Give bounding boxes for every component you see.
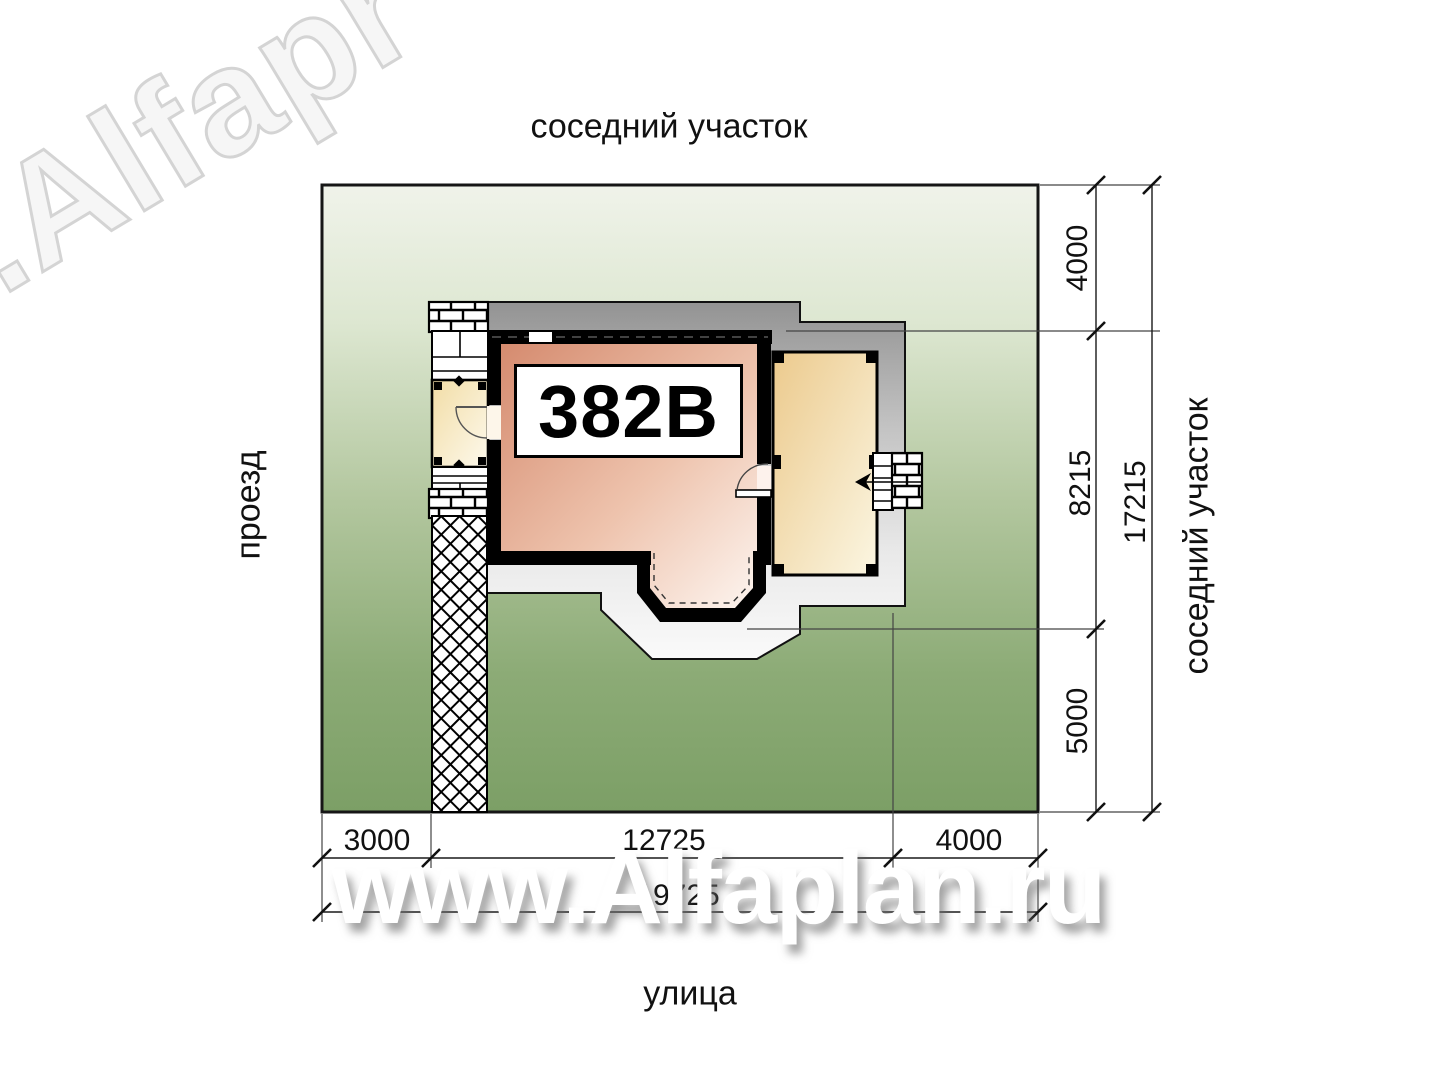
- neighbor-plot-label-right: соседний участок: [1178, 397, 1217, 674]
- porch-door-opening: [487, 406, 501, 439]
- terrace-column: [774, 564, 784, 574]
- dim-value-4000-right: 4000: [1061, 225, 1095, 292]
- wall-bottom-left: [487, 551, 651, 565]
- terrace-edge-mark: [773, 455, 781, 469]
- dim-value-8215: 8215: [1064, 450, 1098, 517]
- porch-column: [434, 457, 442, 465]
- dim-value-5000: 5000: [1061, 688, 1095, 755]
- plan-number: 382В: [538, 369, 719, 454]
- neighbor-plot-label-top: соседний участок: [530, 108, 807, 147]
- side-steps-brick: [892, 453, 922, 508]
- entry-steps-brick-top: [429, 302, 488, 332]
- terrace: [773, 352, 877, 575]
- entry-steps-brick-bottom: [429, 489, 488, 518]
- porch-column: [434, 382, 442, 390]
- terrace-column: [774, 353, 784, 363]
- paved-walkway: [432, 516, 487, 812]
- door-leaf: [736, 490, 771, 497]
- terrace-floor: [773, 352, 877, 575]
- driveway-label-left: проезд: [230, 450, 269, 559]
- terrace-column: [866, 564, 876, 574]
- plan-number-box: 382В: [514, 364, 743, 458]
- dim-value-17215: 17215: [1119, 460, 1153, 543]
- site-plan-page: соседний участок проезд соседний участок…: [0, 0, 1440, 1080]
- porch-column: [478, 382, 486, 390]
- wall-right-upper: [757, 330, 771, 464]
- watermark-site-url: www.Alfaplan.ru: [331, 829, 1104, 947]
- porch-column: [478, 457, 486, 465]
- terrace-column: [866, 353, 876, 363]
- street-label: улица: [643, 975, 736, 1014]
